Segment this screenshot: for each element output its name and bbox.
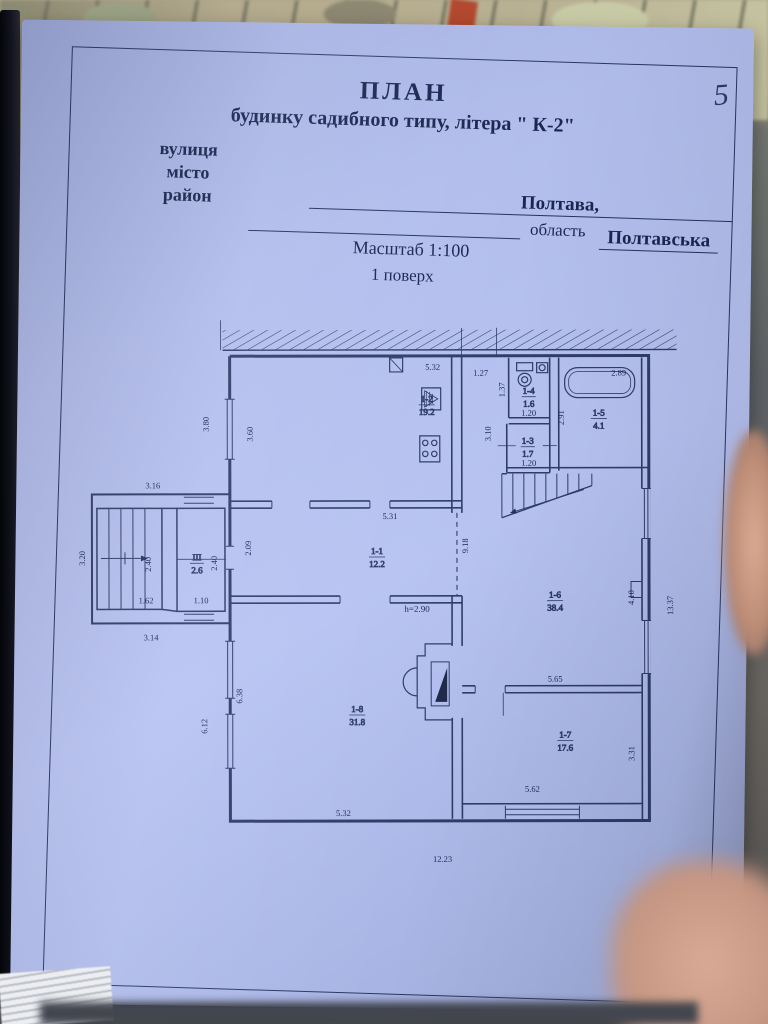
dim-label: 12.23	[433, 854, 452, 864]
dim-label: 2.40	[143, 557, 153, 572]
svg-text:1-6: 1-6	[549, 590, 562, 600]
dim-label: 6.38	[234, 689, 244, 704]
dim-label: 3.60	[245, 427, 255, 442]
window	[642, 488, 651, 538]
svg-text:1-3: 1-3	[522, 436, 535, 446]
window	[225, 399, 235, 459]
dim-label: 5.32	[425, 362, 440, 372]
dim-label: 4.10	[626, 590, 636, 605]
room-label-1-3: 1-3 1.7	[521, 436, 535, 459]
window	[642, 620, 651, 673]
oblast-label: область	[520, 219, 600, 241]
dim-label: 1.20	[521, 458, 536, 468]
outer-walls	[230, 355, 650, 821]
room-label-vestibule: III 2.6	[190, 552, 204, 575]
photo-of-floor-plan-document: { "page": { "number": "5" }, "header": {…	[0, 0, 768, 1024]
dim-label: 2.89	[611, 368, 626, 378]
floor-plan-area: 1-2 19.2 1-4 1.6 1-3 1.7 1-5 4.1	[73, 305, 686, 884]
dim-label: 1.10	[194, 595, 209, 605]
floor-plan-drawing: 1-2 19.2 1-4 1.6 1-3 1.7 1-5 4.1	[73, 305, 686, 884]
scale-note: Масштаб 1:100	[352, 237, 469, 262]
document-page: 5 ПЛАН будинку садибного типу, літера " …	[10, 20, 754, 1013]
dim-label: 1.20	[521, 408, 536, 418]
dim-label: 1.62	[139, 595, 154, 605]
height-note: h=2.90	[404, 604, 430, 614]
washbasin-icon	[537, 363, 548, 373]
room-label-1-1: 1-1 12.2	[369, 546, 385, 569]
dim-label: 3.31	[626, 746, 636, 761]
svg-text:38.4: 38.4	[547, 603, 563, 613]
svg-text:III: III	[192, 552, 201, 562]
address-labels: вулиця місто район	[145, 137, 231, 209]
dim-label: 9.18	[460, 538, 470, 553]
dimension-labels: 5.32 1.27 2.89 3.60 3.80 1.37 1.20 3.10 …	[77, 361, 676, 864]
svg-text:1-4: 1-4	[523, 386, 536, 396]
dim-label: 1.27	[473, 368, 488, 378]
svg-text:31.8: 31.8	[349, 717, 365, 727]
dim-label: 5.65	[548, 674, 563, 684]
dim-label: 3.20	[77, 551, 87, 566]
dim-label: 2.09	[243, 541, 253, 556]
interior-walls	[230, 355, 650, 821]
dim-label: 2.40	[209, 556, 219, 571]
svg-text:19.2: 19.2	[419, 407, 435, 417]
floor-note: 1 поверх	[371, 265, 434, 287]
label-district: район	[145, 183, 230, 209]
dim-label: 5.31	[382, 511, 397, 521]
room-label-wc: 1-4 1.6	[522, 386, 536, 409]
label-city: місто	[146, 160, 231, 186]
label-street: вулиця	[146, 137, 231, 163]
toilet-icon	[517, 363, 533, 387]
adjacent-wall-hatch	[221, 319, 677, 356]
dim-label: 3.14	[144, 632, 160, 642]
dim-label: 2.91	[556, 410, 566, 425]
page-shadow	[40, 1002, 698, 1024]
svg-text:1-2: 1-2	[421, 394, 433, 404]
stove-icon	[420, 436, 440, 462]
dim-label: 1.37	[497, 382, 507, 397]
svg-text:1-5: 1-5	[593, 408, 606, 418]
svg-text:1-1: 1-1	[371, 546, 383, 556]
room-label-1-8: 1-8 31.8	[349, 704, 365, 727]
svg-text:1-7: 1-7	[559, 730, 572, 740]
dim-label: 3.10	[483, 426, 493, 441]
porch-stairs	[101, 508, 147, 609]
svg-text:1-8: 1-8	[351, 704, 364, 714]
dim-label: 5.32	[336, 808, 351, 818]
room-label-1-7: 1-7 17.6	[557, 730, 573, 753]
window	[505, 806, 579, 819]
furnace-icon	[403, 644, 452, 720]
room-label-bath: 1-5 4.1	[591, 408, 607, 431]
svg-text:2.6: 2.6	[191, 565, 203, 575]
dim-label: 3.16	[145, 480, 160, 490]
svg-text:17.6: 17.6	[557, 743, 573, 753]
window	[225, 714, 235, 768]
svg-text:4.1: 4.1	[593, 421, 604, 431]
room-label-1-6: 1-6 38.4	[547, 590, 563, 613]
oblast-value: Полтавська	[599, 227, 719, 254]
blank-line	[605, 198, 734, 222]
dim-label: 6.12	[199, 719, 209, 734]
city-value: Полтава,	[515, 192, 606, 218]
svg-text:12.2: 12.2	[369, 559, 385, 569]
dim-label: 13.37	[665, 596, 675, 615]
dim-label: 5.62	[525, 784, 540, 794]
dim-label: 3.80	[201, 417, 211, 432]
interior-staircase	[502, 474, 592, 518]
